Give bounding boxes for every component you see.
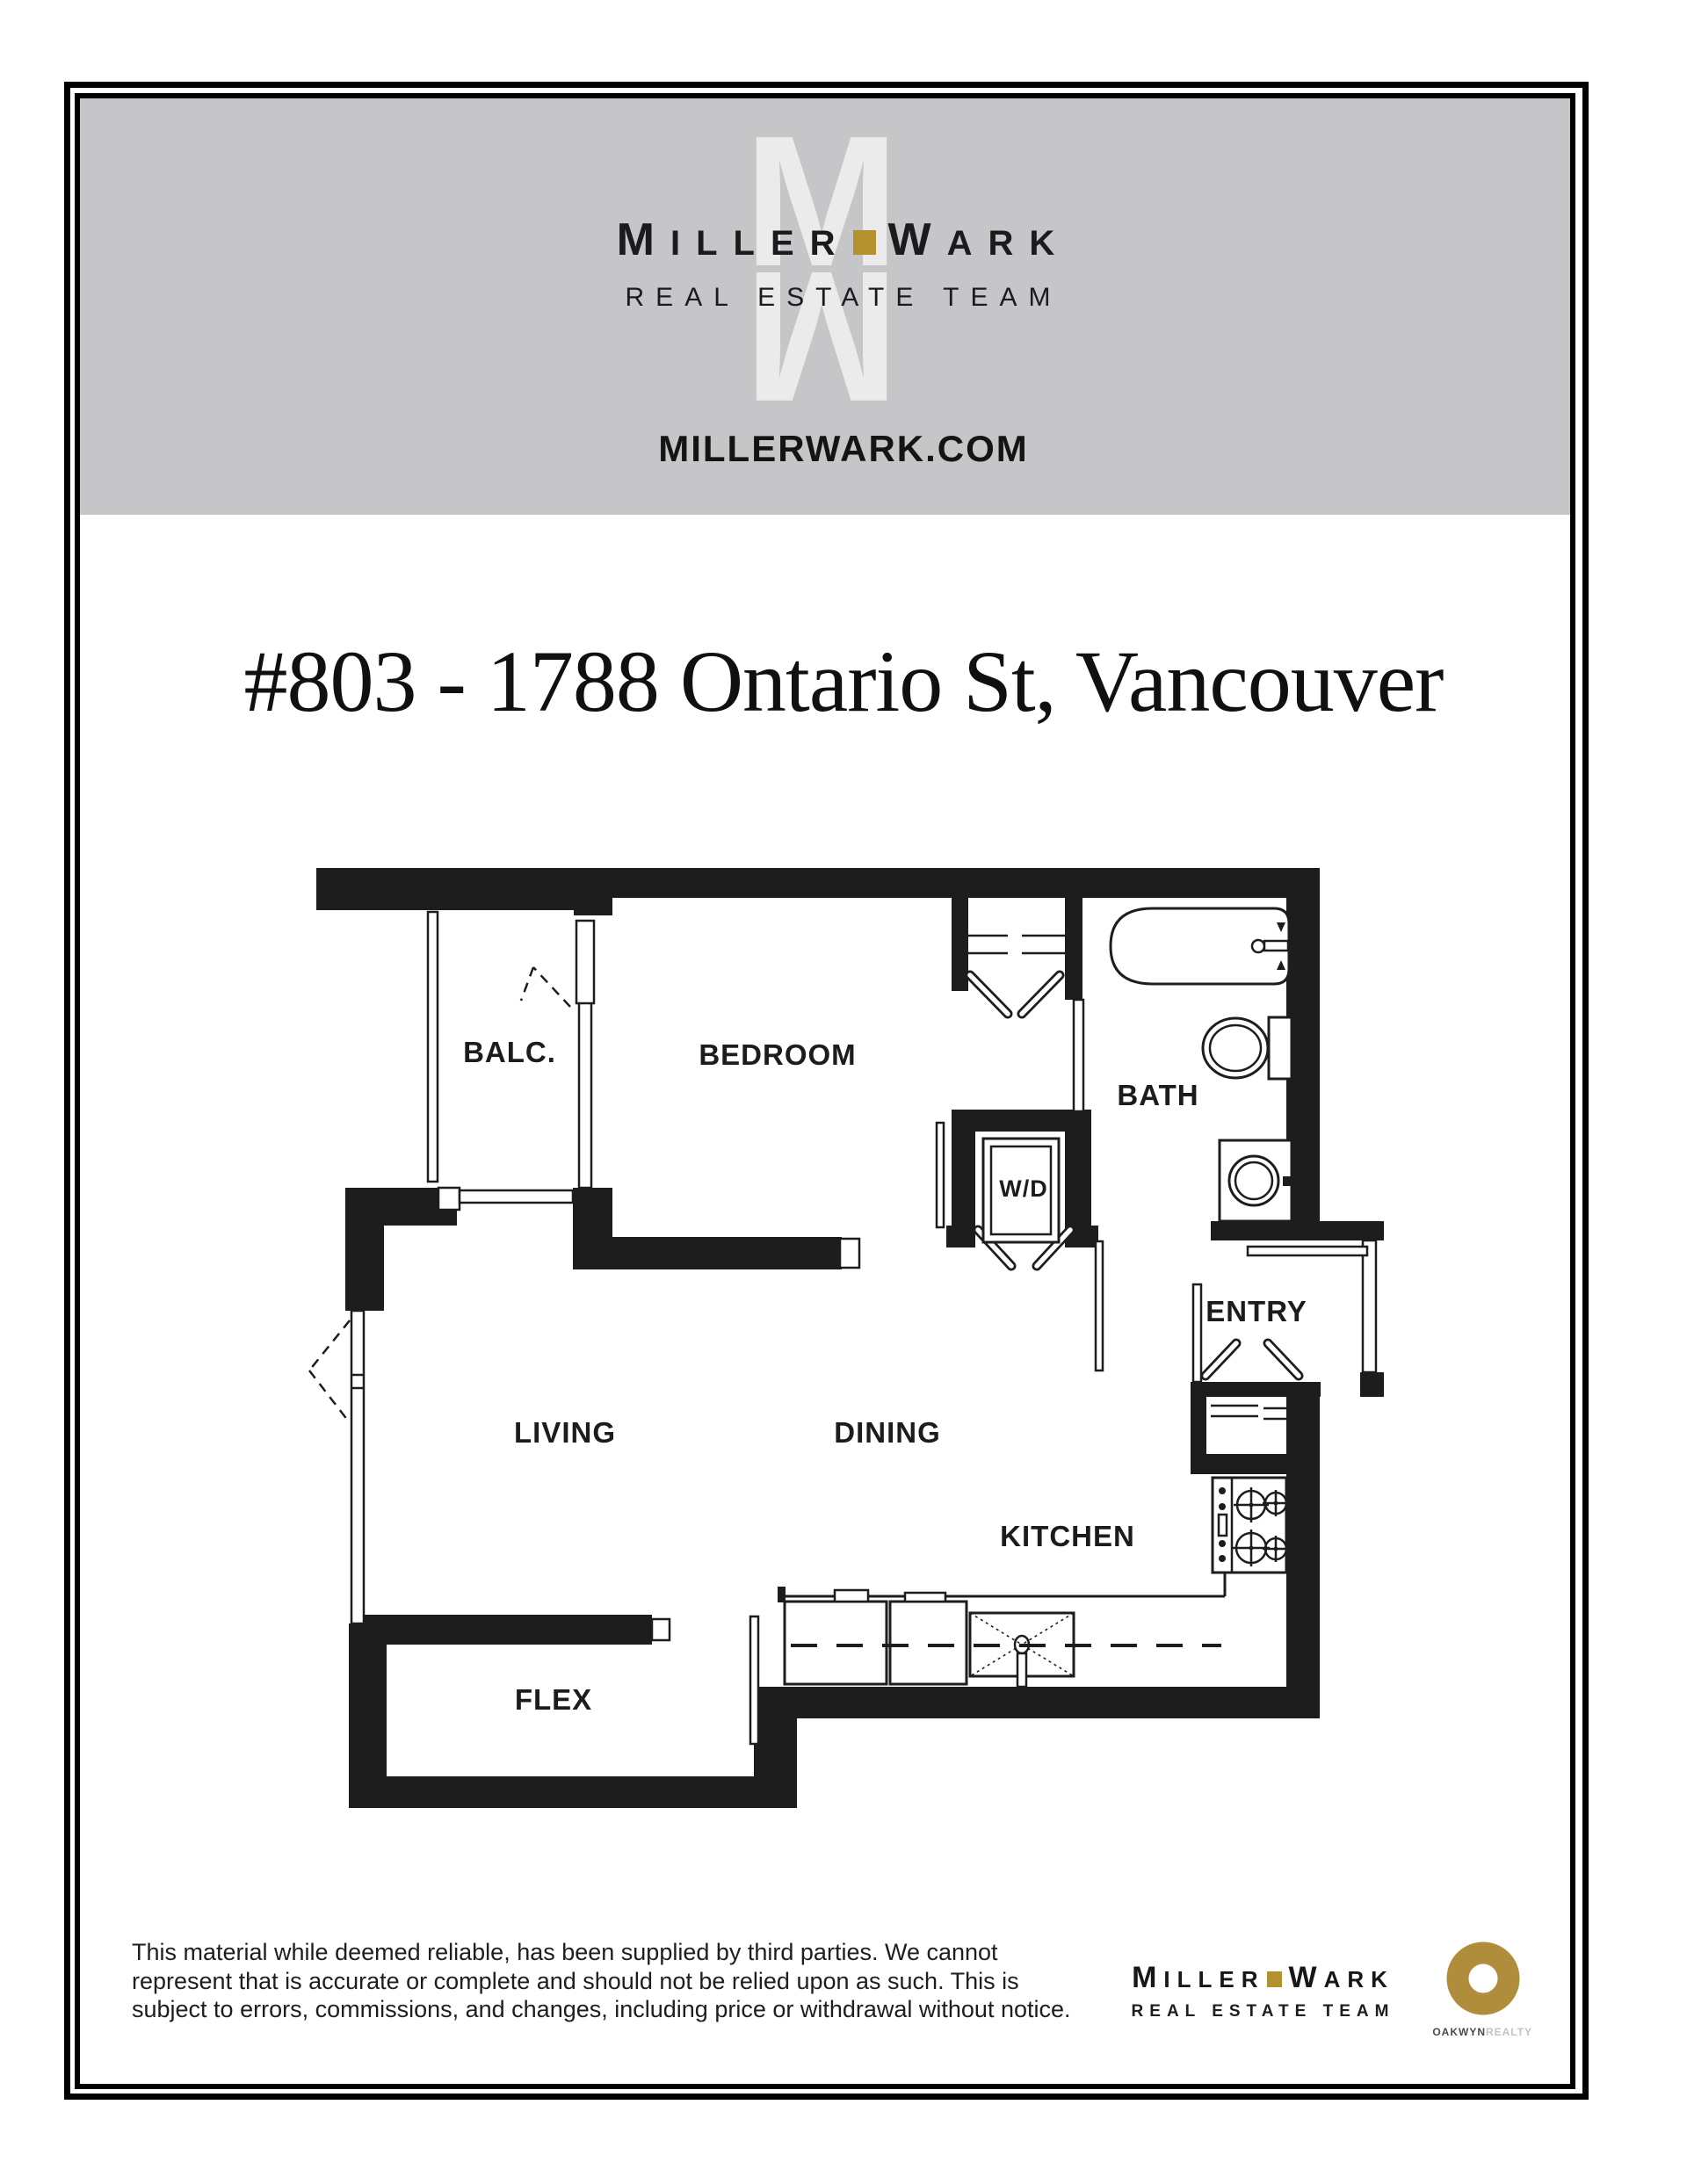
kitchen-fixtures xyxy=(785,1478,1289,1687)
living-window-swing xyxy=(309,1320,350,1421)
label-bath: BATH xyxy=(1117,1079,1198,1111)
balcony-bedroom-wall xyxy=(579,1002,591,1188)
wd-hall-fin xyxy=(937,1123,944,1227)
brand-lockup-footer: MILLERWARK REAL ESTATE TEAM xyxy=(1125,1963,1401,2020)
oakwyn-logo: OAKWYN REALTY xyxy=(1432,1953,1532,2038)
brand-square-icon xyxy=(853,230,876,255)
entry-hall-fin xyxy=(1193,1284,1201,1382)
brand-miller-initial: M xyxy=(617,214,670,265)
brand-miller-rest: ILLER xyxy=(670,224,851,263)
website-url: MILLERWARK.COM xyxy=(0,430,1687,467)
flyer-graphics: M M xyxy=(0,0,1687,2184)
label-bedroom: BEDROOM xyxy=(699,1038,856,1071)
oakwyn-name-light: REALTY xyxy=(1486,2026,1532,2038)
disclaimer-line: This material while deemed reliable, has… xyxy=(132,1938,1169,1967)
balcony-door-swing xyxy=(521,967,570,1007)
label-entry: ENTRY xyxy=(1206,1295,1307,1327)
kitchen-sink xyxy=(970,1613,1074,1687)
bedroom-wall-jamb xyxy=(840,1239,859,1268)
dishwasher xyxy=(890,1593,967,1684)
balcony-slider xyxy=(460,1190,573,1203)
entry-closet-doors xyxy=(1206,1343,1299,1376)
brand-square-icon xyxy=(1267,1971,1282,1987)
entry-door-leaf xyxy=(1363,1240,1376,1372)
brand-wark-initial: W xyxy=(1289,1961,1324,1994)
floorplan: BALC. BEDROOM BATH W/D ENTRY LIVING DINI… xyxy=(309,868,1384,1808)
disclaimer-line: represent that is accurate or complete a… xyxy=(132,1967,1169,1996)
brand-lockup-header: MILLERWARK xyxy=(0,217,1687,263)
brand-wark-rest: ARK xyxy=(947,224,1071,263)
dining-entry-fin xyxy=(1096,1241,1103,1370)
flyer-page: M M xyxy=(0,0,1687,2184)
brand-wark-rest: ARK xyxy=(1324,1966,1394,1992)
oakwyn-name-bold: OAKWYN xyxy=(1432,2026,1486,2038)
bedroom-closet-doors xyxy=(970,975,1060,1014)
monogram-mw-icon: M M xyxy=(744,97,900,441)
svg-text:M: M xyxy=(744,233,900,441)
oakwyn-ring-icon xyxy=(1458,1953,1509,2004)
stove xyxy=(1213,1478,1289,1573)
vanity-sink xyxy=(1220,1140,1292,1221)
bathroom-fixtures xyxy=(1111,908,1292,1221)
toilet xyxy=(1203,1017,1292,1079)
label-kitchen: KITCHEN xyxy=(1000,1520,1135,1552)
balcony-window xyxy=(428,912,438,1182)
living-window xyxy=(351,1311,364,1624)
label-wd: W/D xyxy=(999,1175,1047,1202)
bathtub xyxy=(1111,908,1289,984)
balcony-door-leaf xyxy=(576,921,594,1003)
label-balcony: BALC. xyxy=(463,1036,556,1068)
brand-tagline-header: REAL ESTATE TEAM xyxy=(0,285,1687,311)
label-flex: FLEX xyxy=(515,1683,592,1716)
flex-wall-jamb xyxy=(652,1619,670,1640)
fridge xyxy=(785,1590,887,1684)
brand-miller-initial: M xyxy=(1132,1961,1163,1994)
label-dining: DINING xyxy=(834,1416,941,1449)
brand-wark-initial: W xyxy=(888,214,947,265)
disclaimer-line: subject to errors, commissions, and chan… xyxy=(132,1995,1169,2024)
brand-tagline-footer: REAL ESTATE TEAM xyxy=(1125,2003,1401,2020)
flex-door-leaf xyxy=(750,1616,758,1744)
brand-miller-rest: ILLER xyxy=(1163,1966,1264,1992)
entry-bench xyxy=(1248,1247,1367,1255)
label-living: LIVING xyxy=(514,1416,616,1449)
disclaimer: This material while deemed reliable, has… xyxy=(132,1938,1169,2024)
listing-title: #803 - 1788 Ontario St, Vancouver xyxy=(0,638,1687,726)
slider-jamb xyxy=(438,1188,460,1210)
bath-pocket-door xyxy=(1074,1000,1083,1111)
